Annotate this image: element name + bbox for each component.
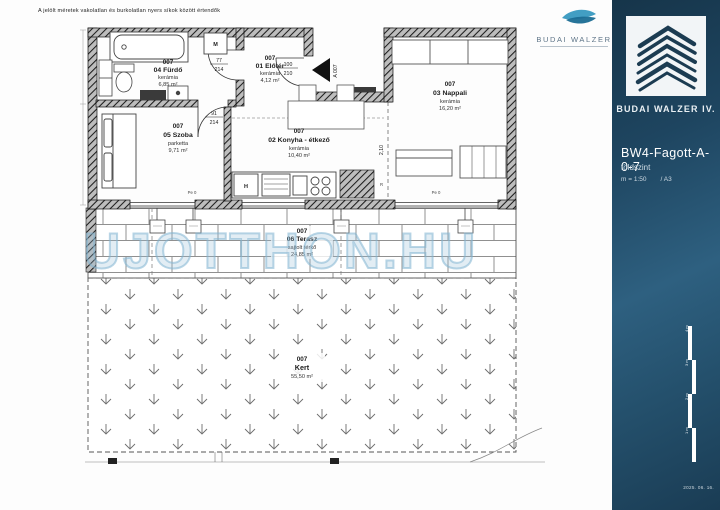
dimension-chain-left	[80, 30, 86, 205]
bed	[102, 114, 136, 188]
svg-text:kerámia: kerámia	[158, 75, 179, 81]
radiator-label: R	[380, 182, 383, 187]
svg-text:03 Nappali: 03 Nappali	[433, 90, 467, 97]
scale-bar-segment	[692, 360, 696, 394]
scale-value: m = 1:50	[621, 176, 646, 183]
svg-text:6,85 m²: 6,85 m²	[159, 82, 178, 88]
svg-text:91: 91	[211, 111, 217, 117]
parapet-marker-2: Pe 0	[432, 190, 441, 195]
sheet-size: / A3	[660, 176, 671, 183]
floor-label: földszint	[621, 163, 650, 172]
svg-text:04 Fürdő: 04 Fürdő	[154, 67, 183, 74]
svg-text:214: 214	[210, 120, 219, 126]
svg-text:02 Konyha - étkező: 02 Konyha - étkező	[268, 137, 330, 144]
scale-bar-label: 2 m	[684, 393, 689, 400]
plan-date: 2025. 06. 16.	[683, 485, 714, 490]
svg-text:007: 007	[173, 123, 184, 130]
dining-set	[288, 85, 364, 129]
svg-text:24,85 m²: 24,85 m²	[291, 252, 313, 258]
svg-text:4,12 m²: 4,12 m²	[261, 78, 280, 84]
svg-text:A 007: A 007	[333, 64, 339, 77]
scale-bar-label: 3 m	[684, 359, 689, 366]
svg-text:parketta: parketta	[168, 141, 189, 147]
svg-text:kerámia: kerámia	[289, 146, 310, 152]
sidebar-brand: BUDAI WALZER IV.	[612, 104, 720, 114]
svg-text:007: 007	[297, 356, 308, 363]
room-label-eloter: 007 01 Előtér kerámia 4,12 m²	[256, 55, 285, 84]
retaining-wall	[86, 208, 96, 272]
room-label-konyha: 007 02 Konyha - étkező kerámia 10,40 m²	[268, 128, 330, 159]
svg-text:06 Terasz: 06 Terasz	[287, 236, 318, 243]
svg-text:007: 007	[445, 81, 456, 88]
svg-text:007: 007	[297, 228, 308, 235]
scale-label: m = 1:50/ A3	[621, 176, 672, 183]
brand-logo-icon	[626, 16, 706, 96]
title-block-sidebar: BUDAI WALZER IV. BW4-Fagott-A-0-7 földsz…	[612, 0, 720, 510]
bathroom-cabinet	[99, 60, 112, 96]
washbasin	[168, 86, 188, 100]
svg-text:kerámia: kerámia	[260, 71, 281, 77]
svg-text:01 Előtér: 01 Előtér	[256, 63, 285, 70]
svg-text:100: 100	[284, 62, 293, 68]
kitchen-island	[340, 170, 374, 198]
svg-text:kerámia: kerámia	[440, 99, 461, 105]
svg-text:214: 214	[215, 67, 224, 73]
scale-bar-label: 1 m	[684, 427, 689, 434]
dimension-opening-height: 2,10	[379, 145, 385, 155]
bathtub	[110, 32, 188, 62]
door-label-bedroom: 91 214	[205, 111, 223, 126]
bath-door	[208, 50, 236, 80]
parapet-marker-1: Pe 0	[188, 190, 197, 195]
bath-counter	[140, 90, 166, 100]
svg-text:10,40 m²: 10,40 m²	[288, 153, 310, 159]
svg-text:9,71 m²: 9,71 m²	[169, 148, 188, 154]
svg-text:05 Szoba: 05 Szoba	[163, 132, 193, 139]
svg-text:16,20 m²: 16,20 m²	[439, 106, 461, 112]
svg-text:77: 77	[216, 58, 222, 64]
scale-bar-label: 4 m	[684, 325, 689, 332]
fridge-label: H	[244, 184, 248, 190]
brand-logo-box	[626, 16, 706, 96]
scale-bar-segment	[692, 428, 696, 462]
scale-bar: 4 m 3 m 2 m 1 m	[684, 326, 698, 466]
washing-machine: M	[204, 33, 227, 54]
svg-text:55,50 m²: 55,50 m²	[291, 374, 313, 380]
room-label-szoba: 007 05 Szoba parketta 9,71 m²	[163, 123, 193, 154]
svg-text:210: 210	[284, 71, 293, 77]
door-label-bath: 77 214	[210, 58, 228, 73]
svg-text:007: 007	[265, 55, 276, 62]
room-label-furdo: 007 04 Fürdő kerámia 6,85 m²	[154, 59, 183, 88]
room-label-nappali: 007 03 Nappali kerámia 16,20 m²	[433, 81, 467, 112]
svg-text:007: 007	[294, 128, 305, 135]
svg-text:M: M	[213, 42, 218, 48]
entrance-marker: A 007	[312, 58, 339, 82]
toilet	[114, 64, 134, 92]
svg-text:007: 007	[163, 59, 174, 66]
terrace-area	[86, 208, 516, 278]
svg-text:Kert: Kert	[295, 363, 310, 372]
floor-plan: 007 Kert 55,50 m² 007 06 Terasz sajtolt …	[0, 0, 612, 510]
svg-text:sajtolt térkő: sajtolt térkő	[288, 245, 317, 251]
